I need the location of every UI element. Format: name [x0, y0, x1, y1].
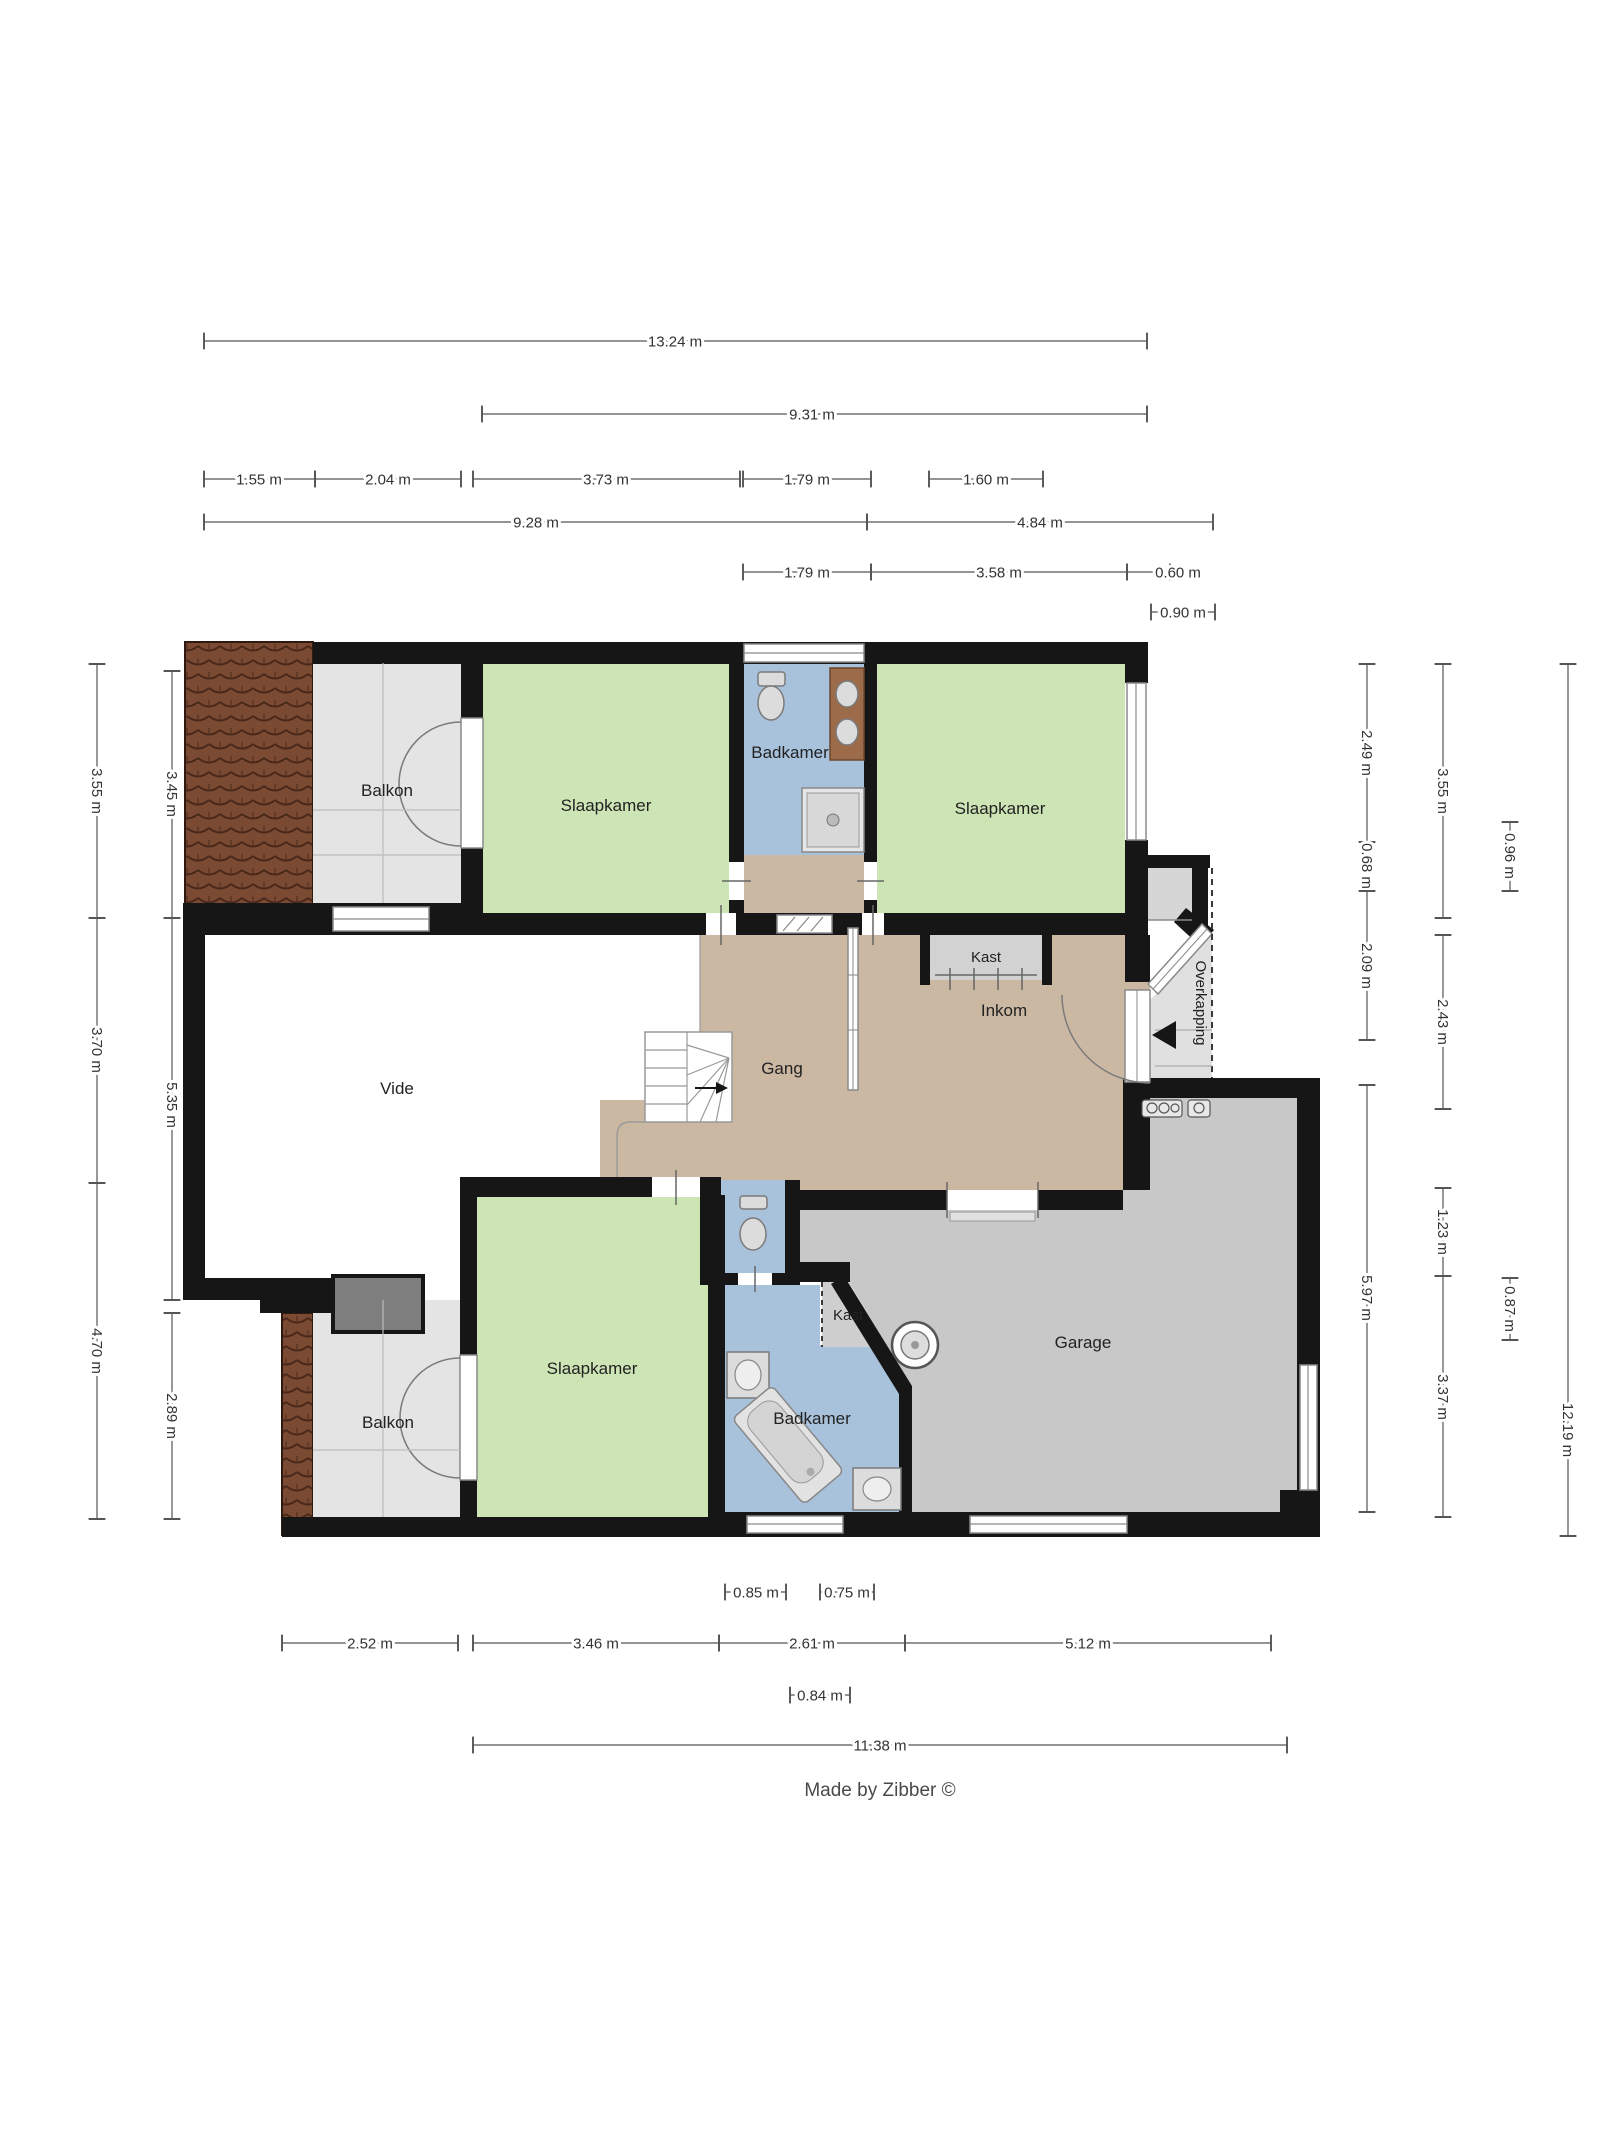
- dimensions-bottom: 0.85 m 0.75 m 2.52 m 3.46 m 2.61 m 5.12 …: [282, 1584, 1287, 1754]
- room-slaapkamer-bottom: [477, 1195, 708, 1517]
- boiler-icons: [1142, 1100, 1210, 1117]
- dim-bottom-0-85: 0.85 m: [733, 1584, 779, 1601]
- dimensions-top: 13.24 m 9.31 m 1.55 m 2.04 m 3.73 m 1.79…: [204, 333, 1215, 621]
- dim-top-9-31: 9.31 m: [789, 406, 835, 423]
- room-slaapkamer-top-left: [483, 664, 729, 913]
- roof-top-left: [185, 642, 313, 925]
- sink-icon-2: [853, 1468, 901, 1510]
- dim-top-3-73: 3.73 m: [583, 471, 629, 488]
- window-bedroom-right: [1127, 683, 1146, 840]
- dim-bottom-5-12: 5.12 m: [1065, 1635, 1111, 1652]
- dim-right-2-09: 2.09 m: [1358, 943, 1375, 989]
- dim-right-12-19: 12.19 m: [1559, 1403, 1576, 1457]
- room-label-gang: Gang: [761, 1059, 803, 1078]
- room-slaapkamer-top-right: [877, 664, 1125, 913]
- window-top: [744, 644, 864, 662]
- window-garage-right: [1300, 1365, 1317, 1490]
- dimensions-left: 3.55 m 3.70 m 4.70 m 3.45 m 5.35 m 2.89 …: [88, 664, 180, 1519]
- room-label-slaapkamer-top-left: Slaapkamer: [561, 796, 652, 815]
- window-badkamer-bottom: [747, 1516, 843, 1533]
- room-label-slaapkamer-bottom: Slaapkamer: [547, 1359, 638, 1378]
- room-label-kast-inkom: Kast: [971, 949, 1002, 966]
- room-label-inkom: Inkom: [981, 1001, 1027, 1020]
- toilet-icon-top: [758, 672, 785, 720]
- dim-left-4-70: 4.70 m: [88, 1328, 105, 1374]
- room-label-vide: Vide: [380, 1079, 414, 1098]
- dim-right-2-49: 2.49 m: [1358, 730, 1375, 776]
- vanity-icon-top: [830, 668, 864, 760]
- door-sliding-bathroom: [777, 915, 832, 933]
- chimney-block: [333, 1276, 423, 1332]
- room-label-overkapping: Overkapping: [1192, 960, 1209, 1045]
- dim-bottom-3-46: 3.46 m: [573, 1635, 619, 1652]
- dim-top-seg2-0-60: 0.60 m: [1155, 564, 1201, 581]
- room-label-garage: Garage: [1055, 1333, 1112, 1352]
- dim-top-4-84: 4.84 m: [1017, 514, 1063, 531]
- dim-left-2-89: 2.89 m: [163, 1393, 180, 1439]
- dim-top-seg2-3-58: 3.58 m: [976, 564, 1022, 581]
- glass-partition: [848, 928, 858, 1090]
- sink-icon-1: [727, 1352, 769, 1398]
- dim-right-2-43: 2.43 m: [1434, 999, 1451, 1045]
- dim-top-seg2-0-90: 0.90 m: [1160, 604, 1206, 621]
- dim-right-3-55: 3.55 m: [1434, 768, 1451, 814]
- dimensions-right: 2.49 m 0.68 m 2.09 m 5.97 m 3.55 m 2.43 …: [1358, 664, 1576, 1536]
- dim-left-3-55: 3.55 m: [88, 768, 105, 814]
- window-garage-bottom: [970, 1516, 1127, 1533]
- dim-top-1-60: 1.60 m: [963, 471, 1009, 488]
- dim-top-1-55: 1.55 m: [236, 471, 282, 488]
- dim-top-1-79: 1.79 m: [784, 471, 830, 488]
- dim-left-3-70: 3.70 m: [88, 1027, 105, 1073]
- dim-right-0-68: 0.68 m: [1358, 843, 1375, 889]
- room-label-kast-garage: Kast: [833, 1307, 864, 1324]
- dim-bottom-2-61: 2.61 m: [789, 1635, 835, 1652]
- dim-top-2-04: 2.04 m: [365, 471, 411, 488]
- dim-bottom-0-75: 0.75 m: [824, 1584, 870, 1601]
- dim-top-seg2-1-79: 1.79 m: [784, 564, 830, 581]
- credit-text: Made by Zibber ©: [804, 1780, 955, 1801]
- dim-top-9-28: 9.28 m: [513, 514, 559, 531]
- window-balkon-top: [333, 907, 429, 931]
- roof-bottom-left: [282, 1313, 313, 1535]
- room-label-slaapkamer-top-right: Slaapkamer: [955, 799, 1046, 818]
- room-label-badkamer-top: Badkamer: [751, 743, 829, 762]
- dim-right-0-96: 0.96 m: [1501, 833, 1518, 879]
- room-label-balkon-bottom: Balkon: [362, 1413, 414, 1432]
- floor-plan-page: Balkon Slaapkamer Badkamer Slaapkamer Ka…: [0, 0, 1600, 2133]
- dim-right-5-97: 5.97 m: [1358, 1275, 1375, 1321]
- dim-bottom-2-52: 2.52 m: [347, 1635, 393, 1652]
- room-label-badkamer-bottom: Badkamer: [773, 1409, 851, 1428]
- room-label-balkon-top: Balkon: [361, 781, 413, 800]
- washing-machine-icon: [892, 1322, 938, 1368]
- floor-plan: Balkon Slaapkamer Badkamer Slaapkamer Ka…: [0, 0, 1600, 2133]
- dim-right-3-37: 3.37 m: [1434, 1374, 1451, 1420]
- dim-bottom-0-84: 0.84 m: [797, 1687, 843, 1704]
- dim-right-1-23: 1.23 m: [1434, 1209, 1451, 1255]
- dim-right-0-87: 0.87 m: [1501, 1286, 1518, 1332]
- dim-left-5-35: 5.35 m: [163, 1082, 180, 1128]
- dim-bottom-total: 11.38 m: [853, 1737, 906, 1754]
- shower-icon: [802, 788, 864, 852]
- dim-left-3-45: 3.45 m: [163, 771, 180, 817]
- toilet-icon-wc: [740, 1196, 767, 1250]
- dim-top-total: 13.24 m: [648, 333, 702, 350]
